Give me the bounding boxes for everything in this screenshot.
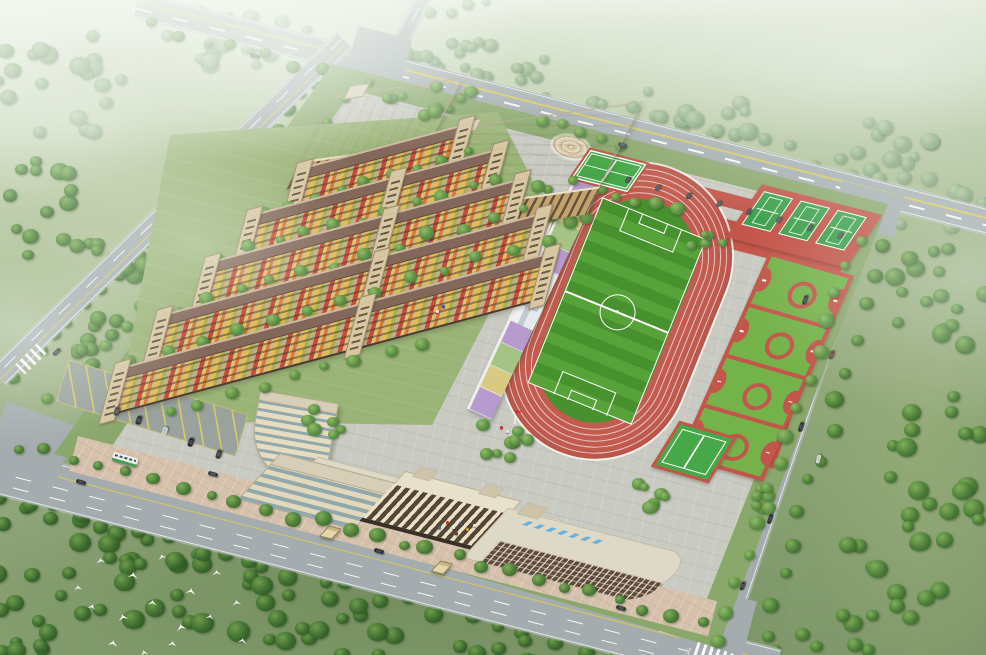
tree: [275, 632, 296, 650]
tree: [670, 202, 685, 215]
tree: [454, 549, 466, 560]
tree: [256, 594, 275, 611]
tree: [640, 483, 649, 491]
tree: [482, 39, 497, 53]
tree: [4, 63, 21, 78]
tree: [69, 57, 90, 75]
center-circle: [760, 329, 798, 363]
tree: [454, 49, 465, 59]
tree: [115, 74, 127, 85]
tree: [749, 516, 765, 530]
tree: [460, 63, 470, 72]
tree: [685, 111, 704, 128]
tree: [521, 434, 535, 446]
tree: [122, 610, 144, 630]
center-circle: [738, 380, 776, 414]
center-circle: [783, 279, 821, 313]
tree: [511, 63, 523, 74]
tree: [518, 635, 532, 647]
tree: [951, 304, 963, 315]
tree: [367, 623, 388, 641]
tree: [37, 443, 50, 454]
tree: [896, 438, 918, 457]
tree: [933, 266, 945, 277]
tree: [653, 110, 668, 124]
guard-kiosk: [319, 525, 342, 539]
tree: [349, 598, 368, 615]
tree: [3, 189, 18, 202]
tree: [649, 197, 663, 209]
tree: [866, 610, 879, 621]
tree: [39, 624, 58, 641]
tree: [289, 370, 300, 380]
tree: [818, 313, 835, 328]
tree: [825, 391, 844, 408]
tree: [718, 606, 733, 619]
tree: [75, 344, 89, 356]
tree: [921, 172, 937, 186]
tree: [415, 338, 429, 350]
tree: [480, 448, 493, 459]
tree: [928, 246, 940, 256]
person: [438, 526, 441, 529]
tree: [901, 507, 919, 523]
tree: [875, 239, 890, 253]
tree: [35, 78, 47, 89]
tree: [920, 133, 939, 150]
person: [473, 524, 476, 527]
tree: [346, 355, 361, 368]
tree: [268, 610, 287, 627]
tree: [660, 492, 670, 500]
tree: [774, 457, 788, 470]
person: [442, 305, 445, 308]
person: [506, 430, 509, 433]
guard-kiosk: [431, 561, 454, 575]
tree: [145, 599, 165, 617]
person: [459, 522, 462, 525]
tree: [285, 512, 302, 527]
tree: [165, 552, 185, 570]
tree: [7, 642, 26, 655]
tree: [939, 503, 958, 520]
tree: [955, 336, 975, 354]
tree: [321, 591, 338, 606]
tree: [839, 537, 857, 553]
tree: [404, 271, 417, 283]
tree: [69, 110, 87, 126]
tree: [251, 576, 273, 595]
tree: [372, 594, 388, 608]
tree: [882, 151, 900, 167]
tree: [834, 153, 847, 164]
tree: [205, 41, 213, 48]
tree: [802, 474, 813, 484]
tree: [43, 512, 58, 525]
tree: [642, 501, 657, 515]
tree: [59, 195, 78, 212]
tree: [372, 649, 385, 655]
tree: [103, 552, 117, 564]
tree: [307, 423, 322, 436]
tree: [69, 456, 79, 465]
tree: [976, 286, 986, 302]
tree: [334, 295, 346, 306]
tree: [166, 407, 177, 416]
tree: [225, 387, 239, 400]
tree: [867, 269, 883, 283]
person: [500, 426, 503, 429]
tree: [85, 124, 102, 139]
tree: [41, 393, 54, 404]
tree: [530, 71, 543, 83]
tree: [972, 514, 984, 525]
tree: [827, 424, 843, 438]
tree: [86, 30, 100, 42]
person: [466, 528, 469, 531]
tree: [146, 473, 159, 485]
tree: [446, 8, 457, 18]
tree: [936, 532, 953, 547]
tree: [22, 250, 34, 260]
tree: [120, 466, 131, 476]
tree: [901, 251, 918, 266]
tree: [251, 60, 261, 69]
person: [430, 306, 433, 309]
tree: [30, 165, 42, 176]
tree: [224, 39, 237, 50]
tree: [785, 539, 801, 553]
tree: [121, 321, 133, 331]
tree: [917, 590, 935, 606]
tree: [828, 287, 840, 298]
tree: [810, 641, 823, 652]
tree: [15, 164, 28, 175]
tree: [464, 147, 473, 155]
tree: [416, 540, 433, 555]
tree: [146, 17, 157, 27]
tree: [502, 563, 517, 576]
tree: [469, 181, 478, 189]
tree: [805, 375, 818, 386]
tree: [476, 419, 489, 431]
tree: [309, 621, 329, 639]
tree: [780, 568, 792, 579]
tree: [466, 43, 477, 53]
person: [446, 521, 449, 524]
tree: [758, 133, 771, 145]
person: [455, 532, 458, 535]
tree: [469, 251, 481, 262]
flag-pole: [514, 412, 516, 424]
tree: [867, 560, 888, 579]
tree: [851, 335, 864, 347]
campus-aerial-rendering: [0, 0, 986, 655]
tree: [739, 106, 750, 116]
tree: [464, 86, 478, 98]
tree: [462, 0, 474, 10]
tree: [904, 423, 920, 437]
tree: [62, 567, 76, 579]
tree: [839, 368, 852, 379]
tree: [902, 521, 914, 532]
tree: [728, 577, 741, 588]
tree: [419, 226, 434, 239]
tree: [399, 541, 409, 550]
tree: [369, 528, 385, 542]
tree: [308, 404, 320, 414]
tree: [0, 90, 17, 105]
tree: [488, 212, 500, 223]
tree: [920, 296, 933, 307]
tree: [319, 362, 329, 371]
tree: [902, 404, 922, 421]
tree: [721, 107, 734, 119]
tree: [941, 243, 955, 255]
tree: [836, 609, 850, 622]
tree: [582, 584, 597, 597]
tree: [698, 617, 709, 627]
tree: [784, 140, 796, 151]
tree: [134, 558, 148, 570]
tree: [908, 481, 929, 500]
tree: [315, 511, 332, 526]
tree: [55, 590, 68, 601]
tree: [932, 325, 952, 342]
tree: [762, 598, 779, 613]
tree: [11, 224, 22, 234]
tree: [64, 184, 79, 197]
tree: [202, 54, 218, 68]
tree: [226, 495, 241, 508]
tree: [952, 482, 973, 500]
tree: [474, 561, 487, 573]
tree: [847, 638, 863, 652]
person: [436, 310, 439, 313]
tree: [850, 146, 865, 159]
tree: [861, 644, 875, 655]
tree: [718, 239, 727, 247]
tree: [504, 452, 517, 463]
tree: [69, 239, 85, 253]
tree: [611, 193, 620, 201]
tree: [385, 345, 399, 357]
tree: [509, 435, 521, 446]
tree: [32, 42, 48, 56]
tree: [286, 61, 300, 73]
tree: [751, 500, 763, 510]
tree: [94, 78, 110, 92]
tree: [22, 229, 39, 244]
tree: [98, 535, 120, 554]
tree: [910, 532, 931, 551]
tree: [790, 403, 802, 413]
tree: [738, 123, 758, 140]
tree: [176, 482, 191, 495]
person: [452, 526, 455, 529]
tree: [491, 642, 506, 655]
